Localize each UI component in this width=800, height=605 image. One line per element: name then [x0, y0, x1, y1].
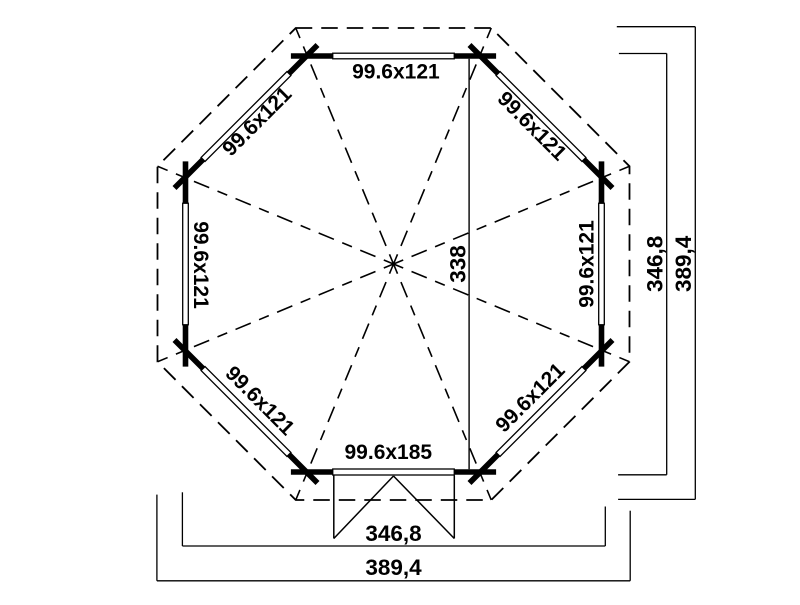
svg-text:99.6x185: 99.6x185	[345, 441, 433, 464]
svg-text:99.6x121: 99.6x121	[189, 221, 212, 309]
svg-text:99.6x121: 99.6x121	[352, 60, 440, 83]
svg-text:389,4: 389,4	[365, 555, 422, 580]
svg-text:346,8: 346,8	[365, 521, 421, 546]
svg-text:346,8: 346,8	[643, 236, 668, 292]
svg-text:338: 338	[446, 245, 471, 283]
svg-text:99.6x121: 99.6x121	[576, 220, 599, 308]
svg-text:389,4: 389,4	[671, 235, 696, 292]
